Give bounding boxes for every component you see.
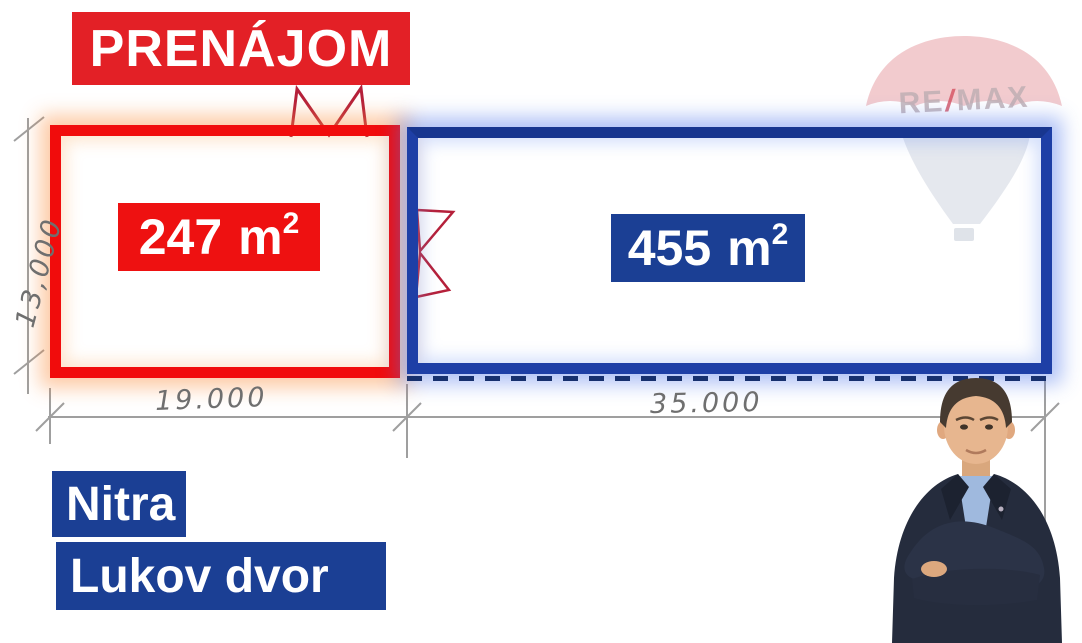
area-unit-blue: m xyxy=(727,223,771,273)
agent-photo xyxy=(872,368,1082,643)
listing-image: RE/MAX 247 m2 455 m2 PREN xyxy=(0,0,1082,643)
area-label-blue: 455 m2 xyxy=(611,214,805,282)
area-exponent-blue: 2 xyxy=(772,220,789,250)
area-label-red: 247 m2 xyxy=(118,203,320,271)
area-exponent-red: 2 xyxy=(283,209,300,239)
agent-figure xyxy=(892,378,1062,643)
location-city-label: Nitra xyxy=(52,471,186,537)
area-number-red: 247 xyxy=(139,212,222,262)
area-unit-red: m xyxy=(238,212,282,262)
location-district-label: Lukov dvor xyxy=(56,542,386,610)
area-number-blue: 455 xyxy=(628,223,711,273)
rental-banner: PRENÁJOM xyxy=(72,12,410,85)
dimension-red-width-label: 19.000 xyxy=(154,382,267,417)
dimension-blue-width-label: 35.000 xyxy=(650,387,763,420)
